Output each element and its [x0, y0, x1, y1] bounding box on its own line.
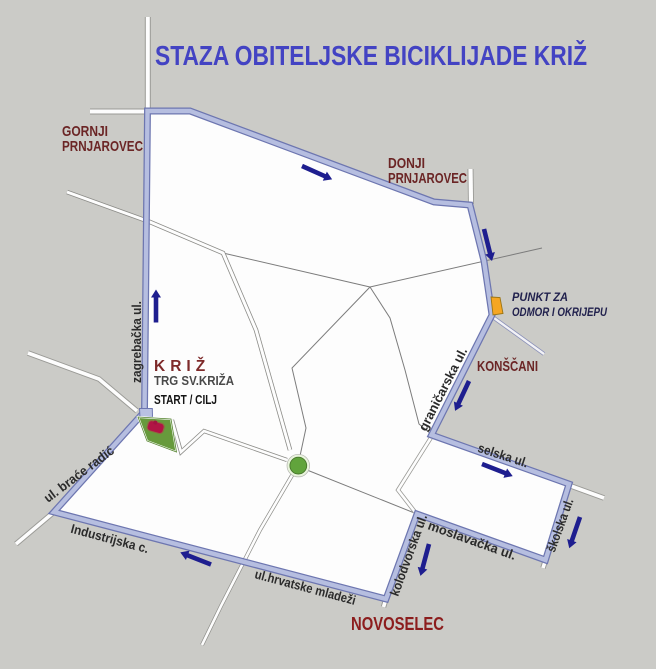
svg-text:NOVOSELEC: NOVOSELEC	[351, 614, 444, 634]
svg-text:START / CILJ: START / CILJ	[154, 393, 217, 407]
svg-text:zagrebačka ul.: zagrebačka ul.	[129, 301, 144, 383]
svg-text:PRNJAROVEC: PRNJAROVEC	[388, 170, 467, 187]
svg-text:KONŠČANI: KONŠČANI	[477, 357, 538, 375]
svg-text:KRIŽ: KRIŽ	[154, 357, 210, 375]
svg-text:STAZA OBITELJSKE BICIKLIJADE K: STAZA OBITELJSKE BICIKLIJADE KRIŽ	[155, 40, 587, 71]
svg-text:ODMOR I OKRIJEPU: ODMOR I OKRIJEPU	[512, 307, 608, 319]
svg-text:PUNKT ZA: PUNKT ZA	[512, 292, 568, 304]
svg-text:PRNJAROVEC: PRNJAROVEC	[62, 138, 143, 155]
svg-text:TRG SV.KRIŽA: TRG SV.KRIŽA	[154, 373, 234, 388]
